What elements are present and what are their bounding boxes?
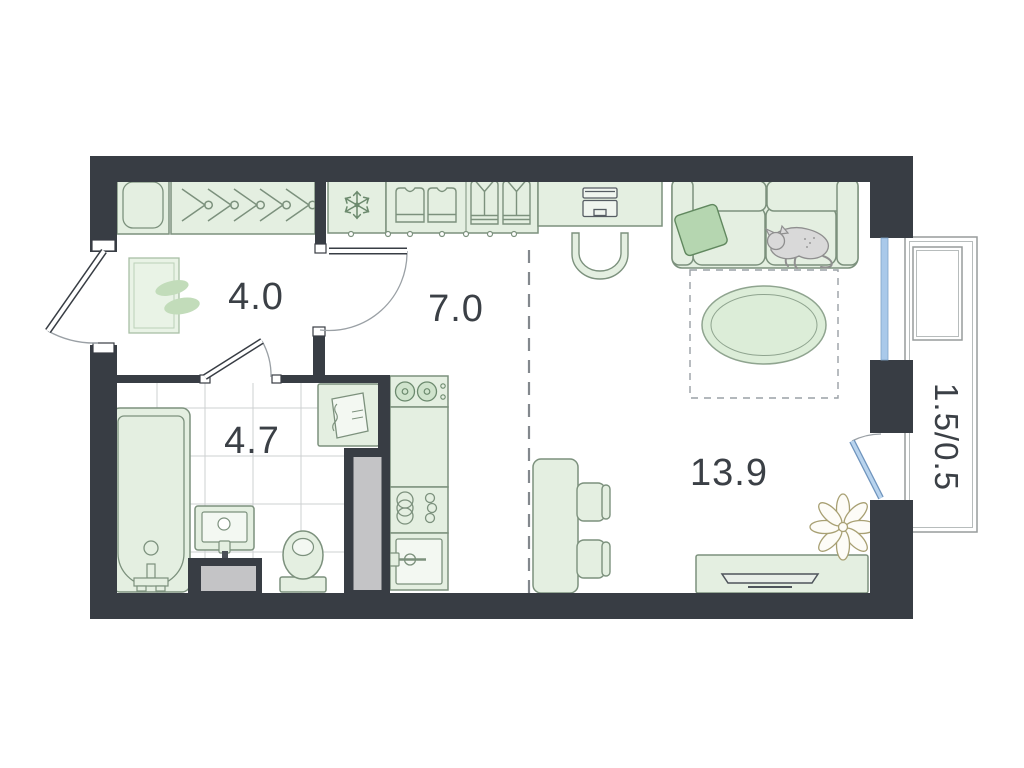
kitchen-sink [390, 533, 448, 590]
wall-right-lower [870, 500, 913, 619]
dining-table [533, 459, 578, 593]
stove [390, 376, 448, 407]
wall-bathroom-kitchen [378, 383, 390, 448]
dining-chair [577, 540, 610, 578]
fridge [328, 176, 386, 233]
balcony-box [913, 247, 962, 340]
burner-icon [418, 382, 437, 401]
wall-right-middle [870, 360, 913, 433]
laptop-icon [583, 188, 617, 217]
dining-chair [577, 483, 610, 521]
entry-cabinet [117, 176, 169, 234]
room-label-living: 13.9 [690, 452, 768, 494]
burner-icon [396, 382, 415, 401]
wall-right-upper [870, 156, 913, 238]
wall-pier-hall-kitchen [315, 182, 326, 244]
wall-top [90, 156, 905, 182]
room-label-hallway: 4.0 [228, 276, 284, 318]
bathtub [112, 408, 190, 592]
wardrobe-shirts [386, 176, 538, 233]
wall-bathroom-top-left [112, 375, 200, 383]
toilet [280, 531, 326, 592]
dish-rack [390, 487, 448, 533]
room-label-bathroom: 4.7 [224, 420, 280, 462]
wall-bathroom-top-right [273, 375, 390, 383]
duct-shaft [354, 457, 382, 590]
kitchen-counter [390, 407, 448, 487]
room-label-balcony: 1.5/0.5 [928, 383, 965, 491]
faucet-icon [390, 553, 399, 566]
floor-plan-page: 4.0 7.0 4.7 13.9 1.5/0.5 [0, 0, 1024, 768]
wall-bottom [90, 593, 905, 619]
hall-wardrobe [171, 176, 316, 234]
room-label-kitchen: 7.0 [428, 288, 484, 330]
plant-icon [810, 494, 876, 560]
window [881, 238, 888, 360]
wall-left-lower [90, 345, 117, 619]
oval-rug [702, 286, 826, 364]
floor-plan-svg: 4.0 7.0 4.7 13.9 1.5/0.5 [0, 0, 1024, 768]
desk [538, 176, 662, 226]
wall-left-upper [90, 156, 117, 252]
washing-machine [318, 384, 379, 446]
duct-niche [201, 566, 256, 591]
washbasin [195, 506, 254, 558]
